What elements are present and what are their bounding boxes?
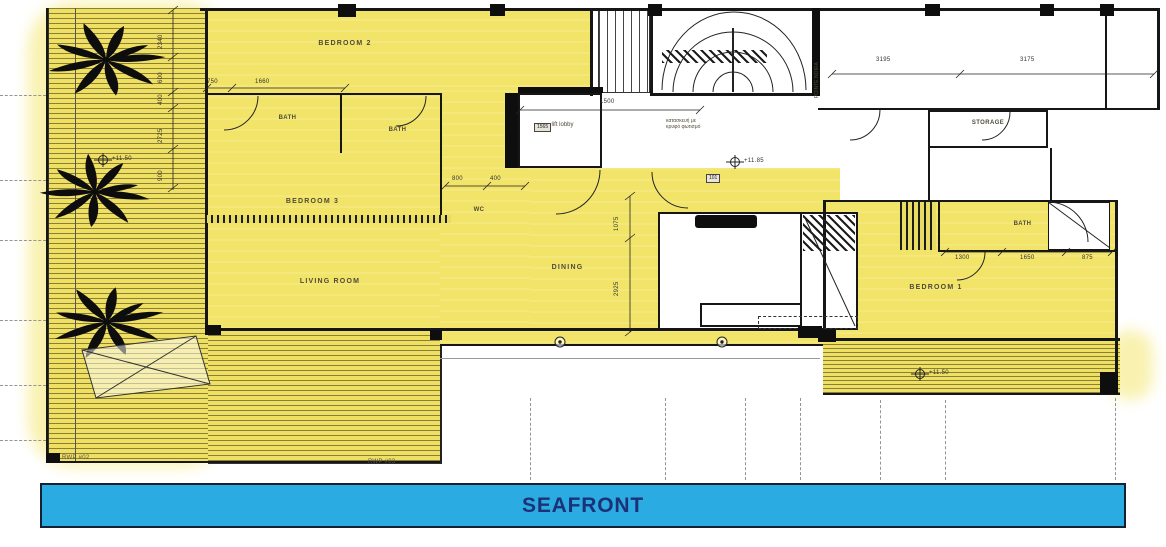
room-label-storage: STORAGE: [956, 120, 1020, 126]
gridline: [800, 398, 801, 480]
room-label-dining: DINING: [540, 264, 595, 271]
gridline: [0, 95, 46, 96]
column: [338, 4, 356, 17]
terrace-deck-right: [823, 340, 1120, 395]
storage-box: [928, 110, 1048, 148]
wall: [823, 338, 1120, 341]
room-label-bath-right: BATH: [1000, 221, 1045, 227]
note-greek-line2: κρυφό φωτισμό: [666, 124, 738, 130]
wall: [205, 93, 441, 95]
wall: [938, 250, 1118, 252]
gridline: [0, 180, 46, 181]
wall: [590, 8, 593, 96]
room-label-bedroom3: BEDROOM 3: [265, 198, 360, 205]
balcony-edge: [440, 344, 823, 346]
stair-landing-hatch: [662, 50, 767, 63]
wardrobe-hatch: [803, 215, 855, 251]
wall: [440, 93, 442, 223]
dim-3195: 3195: [876, 57, 891, 63]
gridline: [0, 440, 46, 441]
rwp-label-left: RWP #02: [62, 455, 90, 461]
gridline: [0, 385, 46, 386]
gridline: [1115, 398, 1116, 480]
gridline: [945, 400, 946, 480]
terrace-deck-bottom-left: [208, 330, 442, 464]
wall-hatched: [205, 215, 451, 223]
gridline: [880, 400, 881, 480]
gridline: [530, 398, 531, 480]
wall: [1115, 200, 1118, 385]
closet-hatch: [900, 202, 936, 250]
column: [1040, 4, 1054, 16]
wall: [1050, 148, 1052, 200]
dim-875: 875: [1082, 255, 1093, 261]
dim-mid-2925: 2925: [614, 281, 620, 296]
wall: [823, 200, 1118, 202]
gridline: [0, 320, 46, 321]
lift-wall: [518, 87, 603, 93]
column: [205, 325, 221, 335]
dim-3175: 3175: [1020, 57, 1035, 63]
dim-left-900: 900: [158, 170, 164, 181]
wall: [818, 108, 1160, 110]
column: [430, 330, 442, 340]
room-label-bedroom1: BEDROOM 1: [890, 284, 982, 291]
dim-left-400: 400: [158, 94, 164, 105]
cooktop: [695, 215, 757, 228]
wall: [928, 148, 930, 200]
gridline: [745, 398, 746, 480]
dim-800: 800: [452, 176, 463, 182]
level-terrace-left: +11.50: [112, 156, 132, 162]
dim-1650: 1650: [1020, 255, 1035, 261]
rwp-label-right: RWP #03: [368, 459, 396, 465]
column: [490, 4, 505, 16]
terrace-edge-line: [75, 8, 76, 463]
dim-left-600: 600: [158, 72, 164, 83]
lift-shaft: [505, 93, 518, 168]
level-hall: +11.85: [744, 158, 764, 164]
seafront-banner: SEAFRONT: [40, 483, 1126, 528]
seafront-label: SEAFRONT: [522, 494, 644, 518]
dim-left-2340: 2340: [158, 34, 164, 49]
dim-400: 400: [490, 176, 501, 182]
room-label-bath-left: BATH: [265, 115, 310, 121]
tag-101: 101: [706, 174, 720, 183]
wall: [205, 8, 208, 330]
wall: [1157, 8, 1160, 110]
wall: [340, 93, 342, 153]
wall: [938, 200, 940, 250]
column: [46, 453, 60, 463]
level-terrace-right: +11.50: [929, 370, 949, 376]
dim-left-2725: 2725: [158, 128, 164, 143]
wall: [1105, 8, 1107, 108]
balcony-strip: [440, 330, 823, 345]
dim-mid-1075: 1075: [614, 216, 620, 231]
wall: [46, 8, 48, 463]
column: [1100, 4, 1114, 16]
lift-lobby-box: [518, 93, 602, 168]
room-label-bedroom2: BEDROOM 2: [300, 40, 390, 47]
room-label-bath-mid: BATH: [375, 127, 420, 133]
room-label-living: LIVING ROOM: [280, 278, 380, 285]
column: [925, 4, 940, 16]
service-stair: [598, 10, 650, 93]
gridline: [665, 398, 666, 480]
lower-terrace-line: [440, 358, 820, 359]
closet: [1048, 202, 1110, 250]
dim-750: 750: [207, 79, 218, 85]
dim-1660: 1660: [255, 79, 270, 85]
dim-1300: 1300: [955, 255, 970, 261]
column: [648, 4, 662, 16]
column: [1100, 372, 1118, 394]
wall: [205, 328, 825, 331]
room-label-stairwell: POINTE NOIRA: [814, 62, 820, 98]
terrace-deck-left: [48, 8, 209, 463]
gridline: [0, 240, 46, 241]
floor-plan-canvas: BEDROOM 2 BATH BATH BEDROOM 3 LIVING ROO…: [0, 0, 1166, 547]
room-label-wc: WC: [468, 207, 490, 213]
wall: [823, 393, 1120, 395]
dim-1500: 1500: [600, 99, 615, 105]
tag-1565: 1565: [534, 123, 551, 132]
column: [798, 326, 822, 338]
